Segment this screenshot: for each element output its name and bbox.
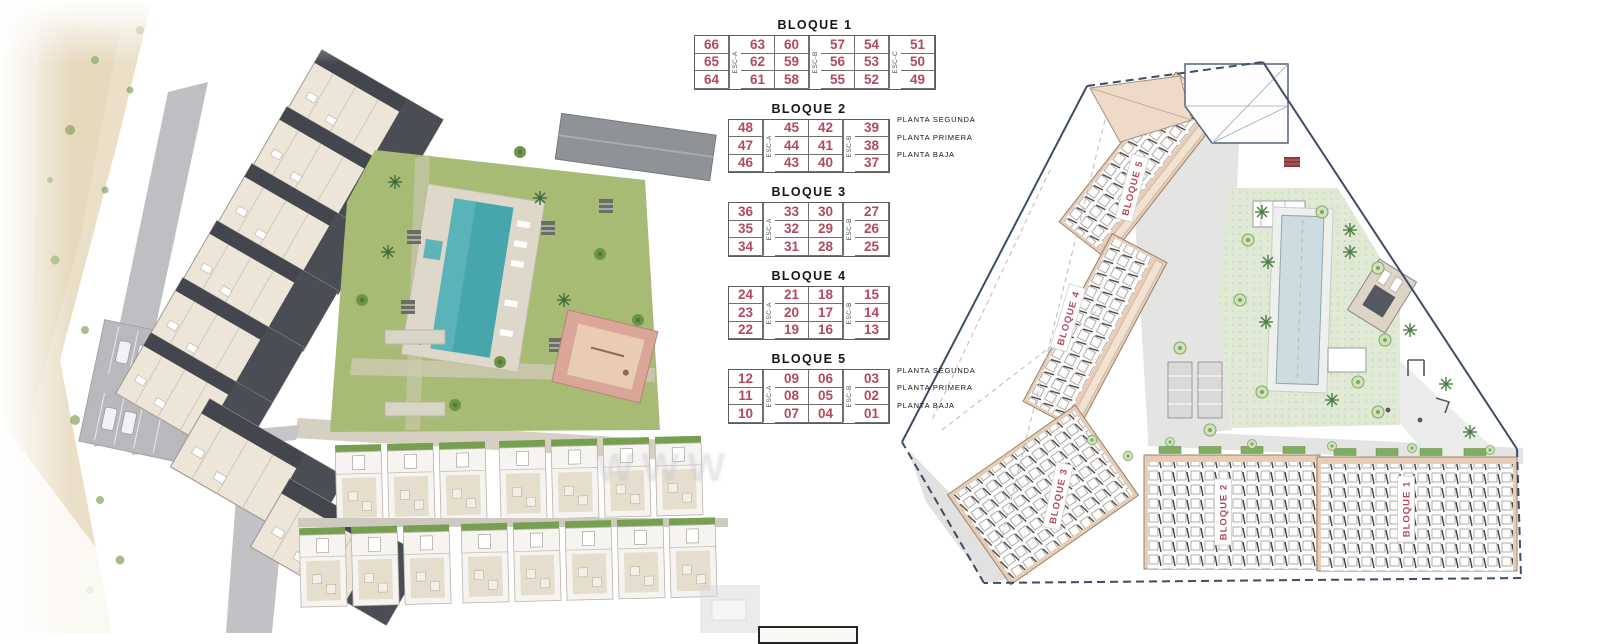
unit-number: 34 xyxy=(729,238,763,256)
stairwell-label: ESC-A xyxy=(763,203,775,256)
svg-text:BLOQUE 2: BLOQUE 2 xyxy=(1219,484,1230,541)
unit-number: 63 xyxy=(741,36,775,54)
unit-number: 44 xyxy=(775,137,809,155)
unit-number: 23 xyxy=(729,304,763,322)
stairwell-label: ESC-B xyxy=(843,203,855,256)
unit-number: 42 xyxy=(809,120,843,138)
unit-number: 66 xyxy=(695,36,729,54)
floor-label: PLANTA BAJA xyxy=(897,401,976,410)
unit-number: 17 xyxy=(809,304,843,322)
unit-table: 12ESC-A0906ESC-B031108050210070401 xyxy=(728,369,890,424)
bloque-title: BLOQUE 3 xyxy=(728,185,890,199)
unit-number: 26 xyxy=(855,221,889,239)
unit-number: 32 xyxy=(775,221,809,239)
unit-table: 36ESC-A3330ESC-B273532292634312825 xyxy=(728,202,890,257)
unit-number: 48 xyxy=(729,120,763,138)
park xyxy=(330,146,660,432)
unit-table: 66ESC-A6360ESC-B5754ESC-C516562595653506… xyxy=(694,35,936,90)
unit-number: 10 xyxy=(729,405,763,423)
unit-number: 41 xyxy=(809,137,843,155)
bloque-section: BLOQUE 166ESC-A6360ESC-B5754ESC-C5165625… xyxy=(694,18,960,90)
floor-label: PLANTA PRIMERA xyxy=(897,383,976,392)
villa-row-upper xyxy=(335,436,703,525)
unit-number: 62 xyxy=(741,54,775,72)
unit-number: 51 xyxy=(901,36,935,54)
unit-table: 24ESC-A2118ESC-B152320171422191613 xyxy=(728,286,890,341)
floor-label: PLANTA SEGUNDA xyxy=(897,115,976,124)
stairwell-label: ESC-A xyxy=(763,370,775,423)
red-hatch-block xyxy=(1284,157,1300,167)
unit-number: 07 xyxy=(775,405,809,423)
floor-label: PLANTA PRIMERA xyxy=(897,133,976,142)
unit-number: 16 xyxy=(809,322,843,340)
render-bleed xyxy=(700,585,760,633)
unit-table: 48ESC-A4542ESC-B394744413846434037 xyxy=(728,119,890,174)
unit-number: 49 xyxy=(901,71,935,89)
unit-number: 57 xyxy=(821,36,855,54)
unit-number: 22 xyxy=(729,322,763,340)
unit-number: 50 xyxy=(901,54,935,72)
unit-number: 61 xyxy=(741,71,775,89)
plan-label-bloque2: BLOQUE 2 xyxy=(1215,479,1232,545)
unit-number: 37 xyxy=(855,155,889,173)
stairwell-label: ESC-B xyxy=(809,36,821,89)
unit-number: 40 xyxy=(809,155,843,173)
svg-text:BLOQUE 1: BLOQUE 1 xyxy=(1402,481,1413,538)
unit-number: 15 xyxy=(855,287,889,305)
bloque-section: BLOQUE 248ESC-A4542ESC-B3947444138464340… xyxy=(728,102,960,174)
stairwell-label: ESC-B xyxy=(843,287,855,340)
bloque2-building xyxy=(1144,447,1320,570)
plan-pool xyxy=(1267,207,1333,393)
unit-number: 59 xyxy=(775,54,809,72)
stairwell-label: ESC-C xyxy=(889,36,901,89)
stairwell-label: ESC-B xyxy=(843,120,855,173)
bloque-section: BLOQUE 336ESC-A3330ESC-B2735322926343128… xyxy=(728,185,960,257)
unit-number: 18 xyxy=(809,287,843,305)
unit-number: 12 xyxy=(729,370,763,388)
stairwell-label: ESC-B xyxy=(843,370,855,423)
unit-number: 31 xyxy=(775,238,809,256)
unit-number: 33 xyxy=(775,203,809,221)
unit-number: 20 xyxy=(775,304,809,322)
unit-number: 53 xyxy=(855,54,889,72)
bloque-section: BLOQUE 424ESC-A2118ESC-B1523201714221916… xyxy=(728,269,960,341)
unit-number: 09 xyxy=(775,370,809,388)
floor-label: PLANTA BAJA xyxy=(897,150,976,159)
unit-number: 11 xyxy=(729,388,763,406)
unit-number: 36 xyxy=(729,203,763,221)
unit-number: 13 xyxy=(855,322,889,340)
unit-number: 54 xyxy=(855,36,889,54)
bloque-title: BLOQUE 1 xyxy=(694,18,936,32)
unit-number: 19 xyxy=(775,322,809,340)
unit-number: 47 xyxy=(729,137,763,155)
unit-number: 30 xyxy=(809,203,843,221)
stairwell-label: ESC-A xyxy=(763,287,775,340)
partial-table-box xyxy=(758,626,858,644)
unit-number: 21 xyxy=(775,287,809,305)
unit-number: 05 xyxy=(809,388,843,406)
unit-number: 58 xyxy=(775,71,809,89)
unit-number: 27 xyxy=(855,203,889,221)
unit-number: 52 xyxy=(855,71,889,89)
unit-number: 46 xyxy=(729,155,763,173)
unit-number: 28 xyxy=(809,238,843,256)
unit-number: 06 xyxy=(809,370,843,388)
unit-number: 03 xyxy=(855,370,889,388)
floor-label: PLANTA SEGUNDA xyxy=(897,366,976,375)
unit-number: 02 xyxy=(855,388,889,406)
unit-number: 55 xyxy=(821,71,855,89)
stairwell-label: ESC-A xyxy=(729,36,741,89)
unit-number: 24 xyxy=(729,287,763,305)
unit-number: 65 xyxy=(695,54,729,72)
unit-number: 64 xyxy=(695,71,729,89)
unit-number: 29 xyxy=(809,221,843,239)
unit-number: 39 xyxy=(855,120,889,138)
plan-label-bloque1: BLOQUE 1 xyxy=(1398,476,1415,542)
unit-tables-panel: BLOQUE 166ESC-A6360ESC-B5754ESC-C5165625… xyxy=(690,18,960,436)
bloque-title: BLOQUE 2 xyxy=(728,102,890,116)
bloque-title: BLOQUE 5 xyxy=(728,352,890,366)
unit-number: 04 xyxy=(809,405,843,423)
unit-number: 60 xyxy=(775,36,809,54)
unit-number: 45 xyxy=(775,120,809,138)
unit-number: 14 xyxy=(855,304,889,322)
bloque1-building xyxy=(1317,449,1517,572)
unit-number: 38 xyxy=(855,137,889,155)
floor-labels: PLANTA SEGUNDAPLANTA PRIMERAPLANTA BAJA xyxy=(897,111,976,164)
bloque-section: BLOQUE 512ESC-A0906ESC-B0311080502100704… xyxy=(728,352,960,424)
unit-number: 01 xyxy=(855,405,889,423)
unit-number: 43 xyxy=(775,155,809,173)
unit-number: 08 xyxy=(775,388,809,406)
unit-number: 35 xyxy=(729,221,763,239)
stairwell-label: ESC-A xyxy=(763,120,775,173)
unit-number: 56 xyxy=(821,54,855,72)
villa-row-lower xyxy=(299,517,717,607)
unit-number: 25 xyxy=(855,238,889,256)
site-plan: BLOQUE 5 BLOQUE 4 BLOQUE 3 BLOQUE 2 BLOQ… xyxy=(880,0,1600,633)
floor-labels: PLANTA SEGUNDAPLANTA PRIMERAPLANTA BAJA xyxy=(897,361,976,414)
bloque-title: BLOQUE 4 xyxy=(728,269,890,283)
